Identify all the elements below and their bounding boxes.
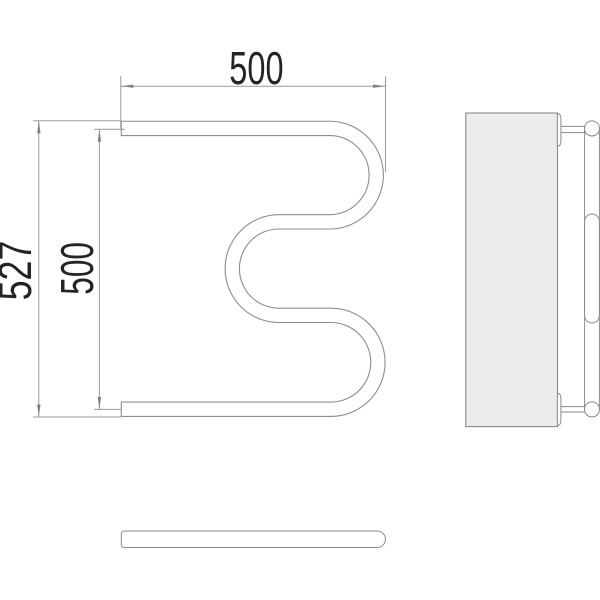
svg-text:527: 527	[0, 241, 41, 301]
svg-text:500: 500	[229, 42, 283, 94]
svg-text:500: 500	[52, 242, 104, 295]
